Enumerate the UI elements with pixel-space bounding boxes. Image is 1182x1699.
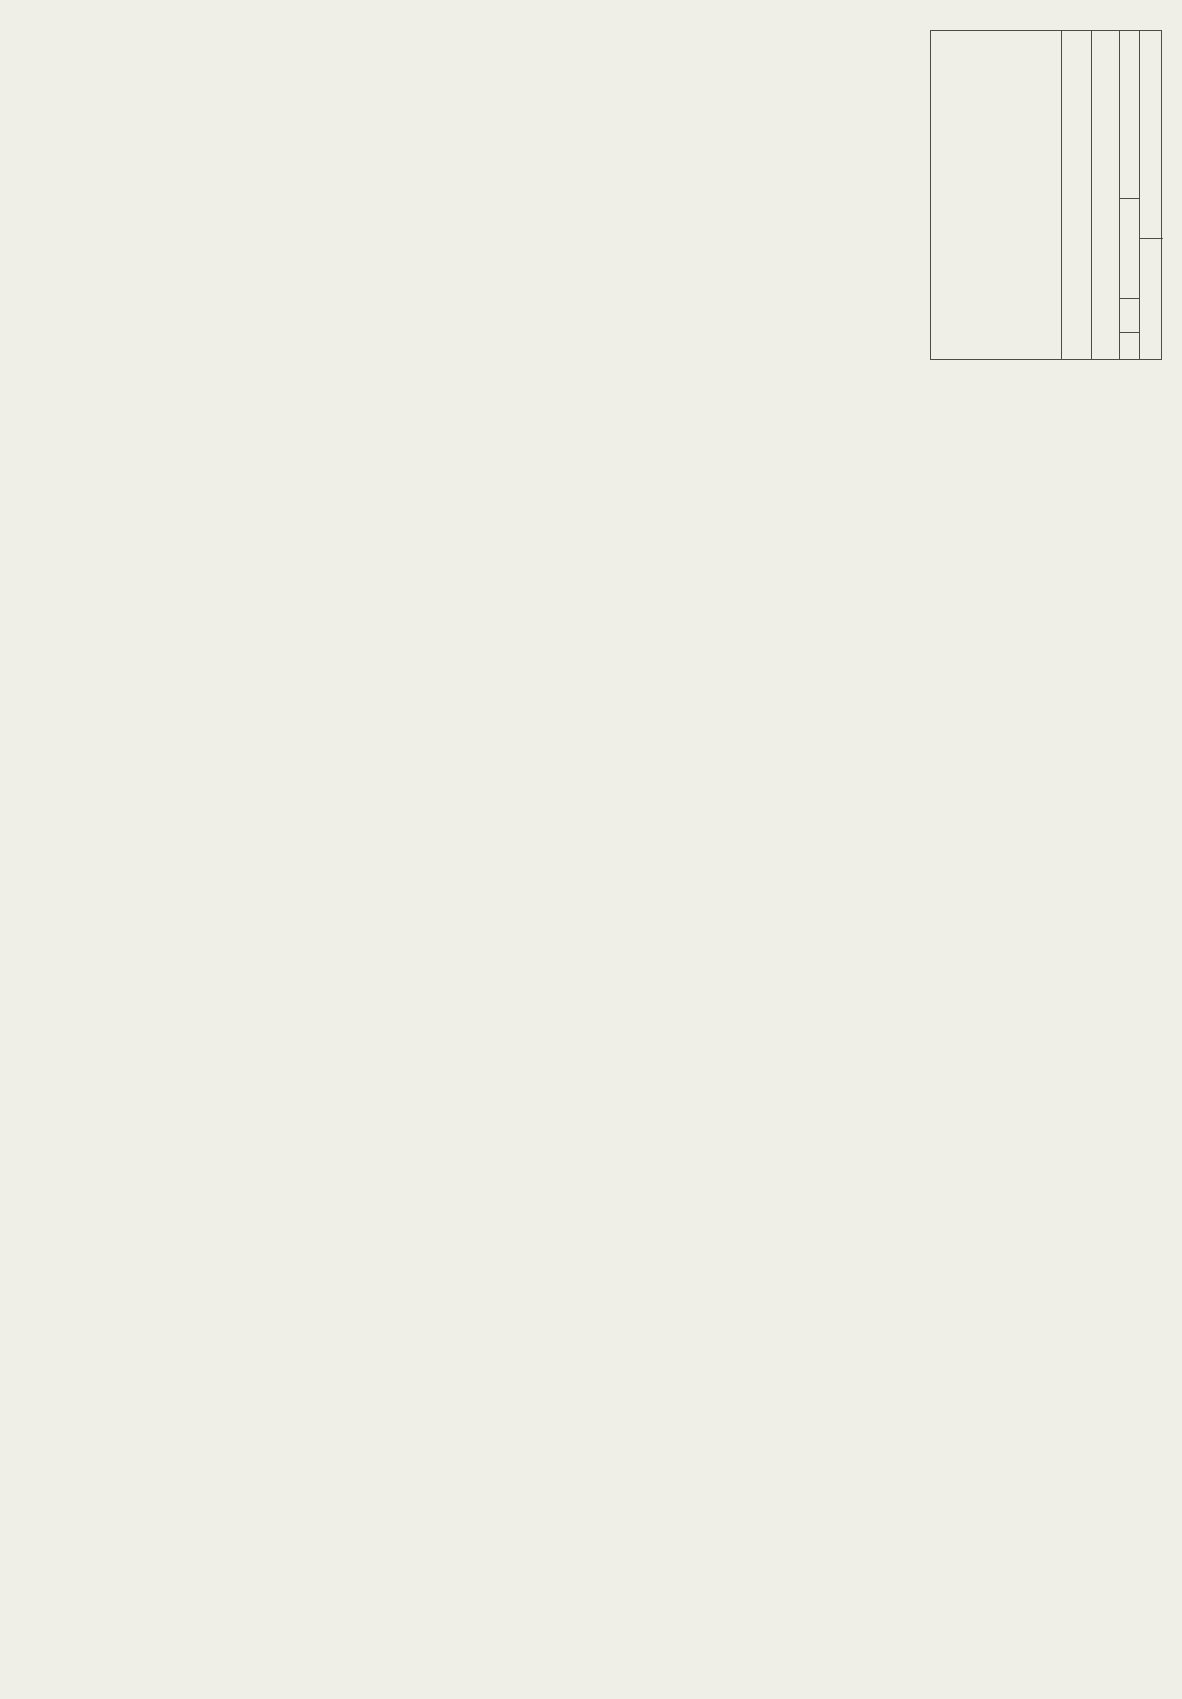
- rev-label: [1120, 333, 1139, 359]
- design-label: [1140, 239, 1163, 359]
- size-label: [1120, 199, 1139, 299]
- verification-label: [1140, 151, 1163, 239]
- design-row: [1139, 31, 1163, 359]
- sheet-separator: [1120, 115, 1139, 131]
- sheet-description: [1092, 31, 1119, 359]
- rev-value: [1120, 299, 1139, 333]
- title-row: [1061, 31, 1091, 359]
- title-block: [930, 30, 1162, 360]
- verification-value: [1140, 31, 1163, 151]
- sheet-number: [1120, 131, 1139, 159]
- description-row: [1091, 31, 1119, 359]
- scanned-schematic-page: [0, 0, 1182, 1699]
- schematic-sheet: [0, 0, 1182, 1699]
- sheet-title: [1062, 31, 1091, 359]
- sheet-label: [1120, 159, 1139, 199]
- rev-row: [1119, 31, 1139, 359]
- title-block-company-row: [931, 31, 1061, 359]
- sheet-total: [1120, 31, 1139, 115]
